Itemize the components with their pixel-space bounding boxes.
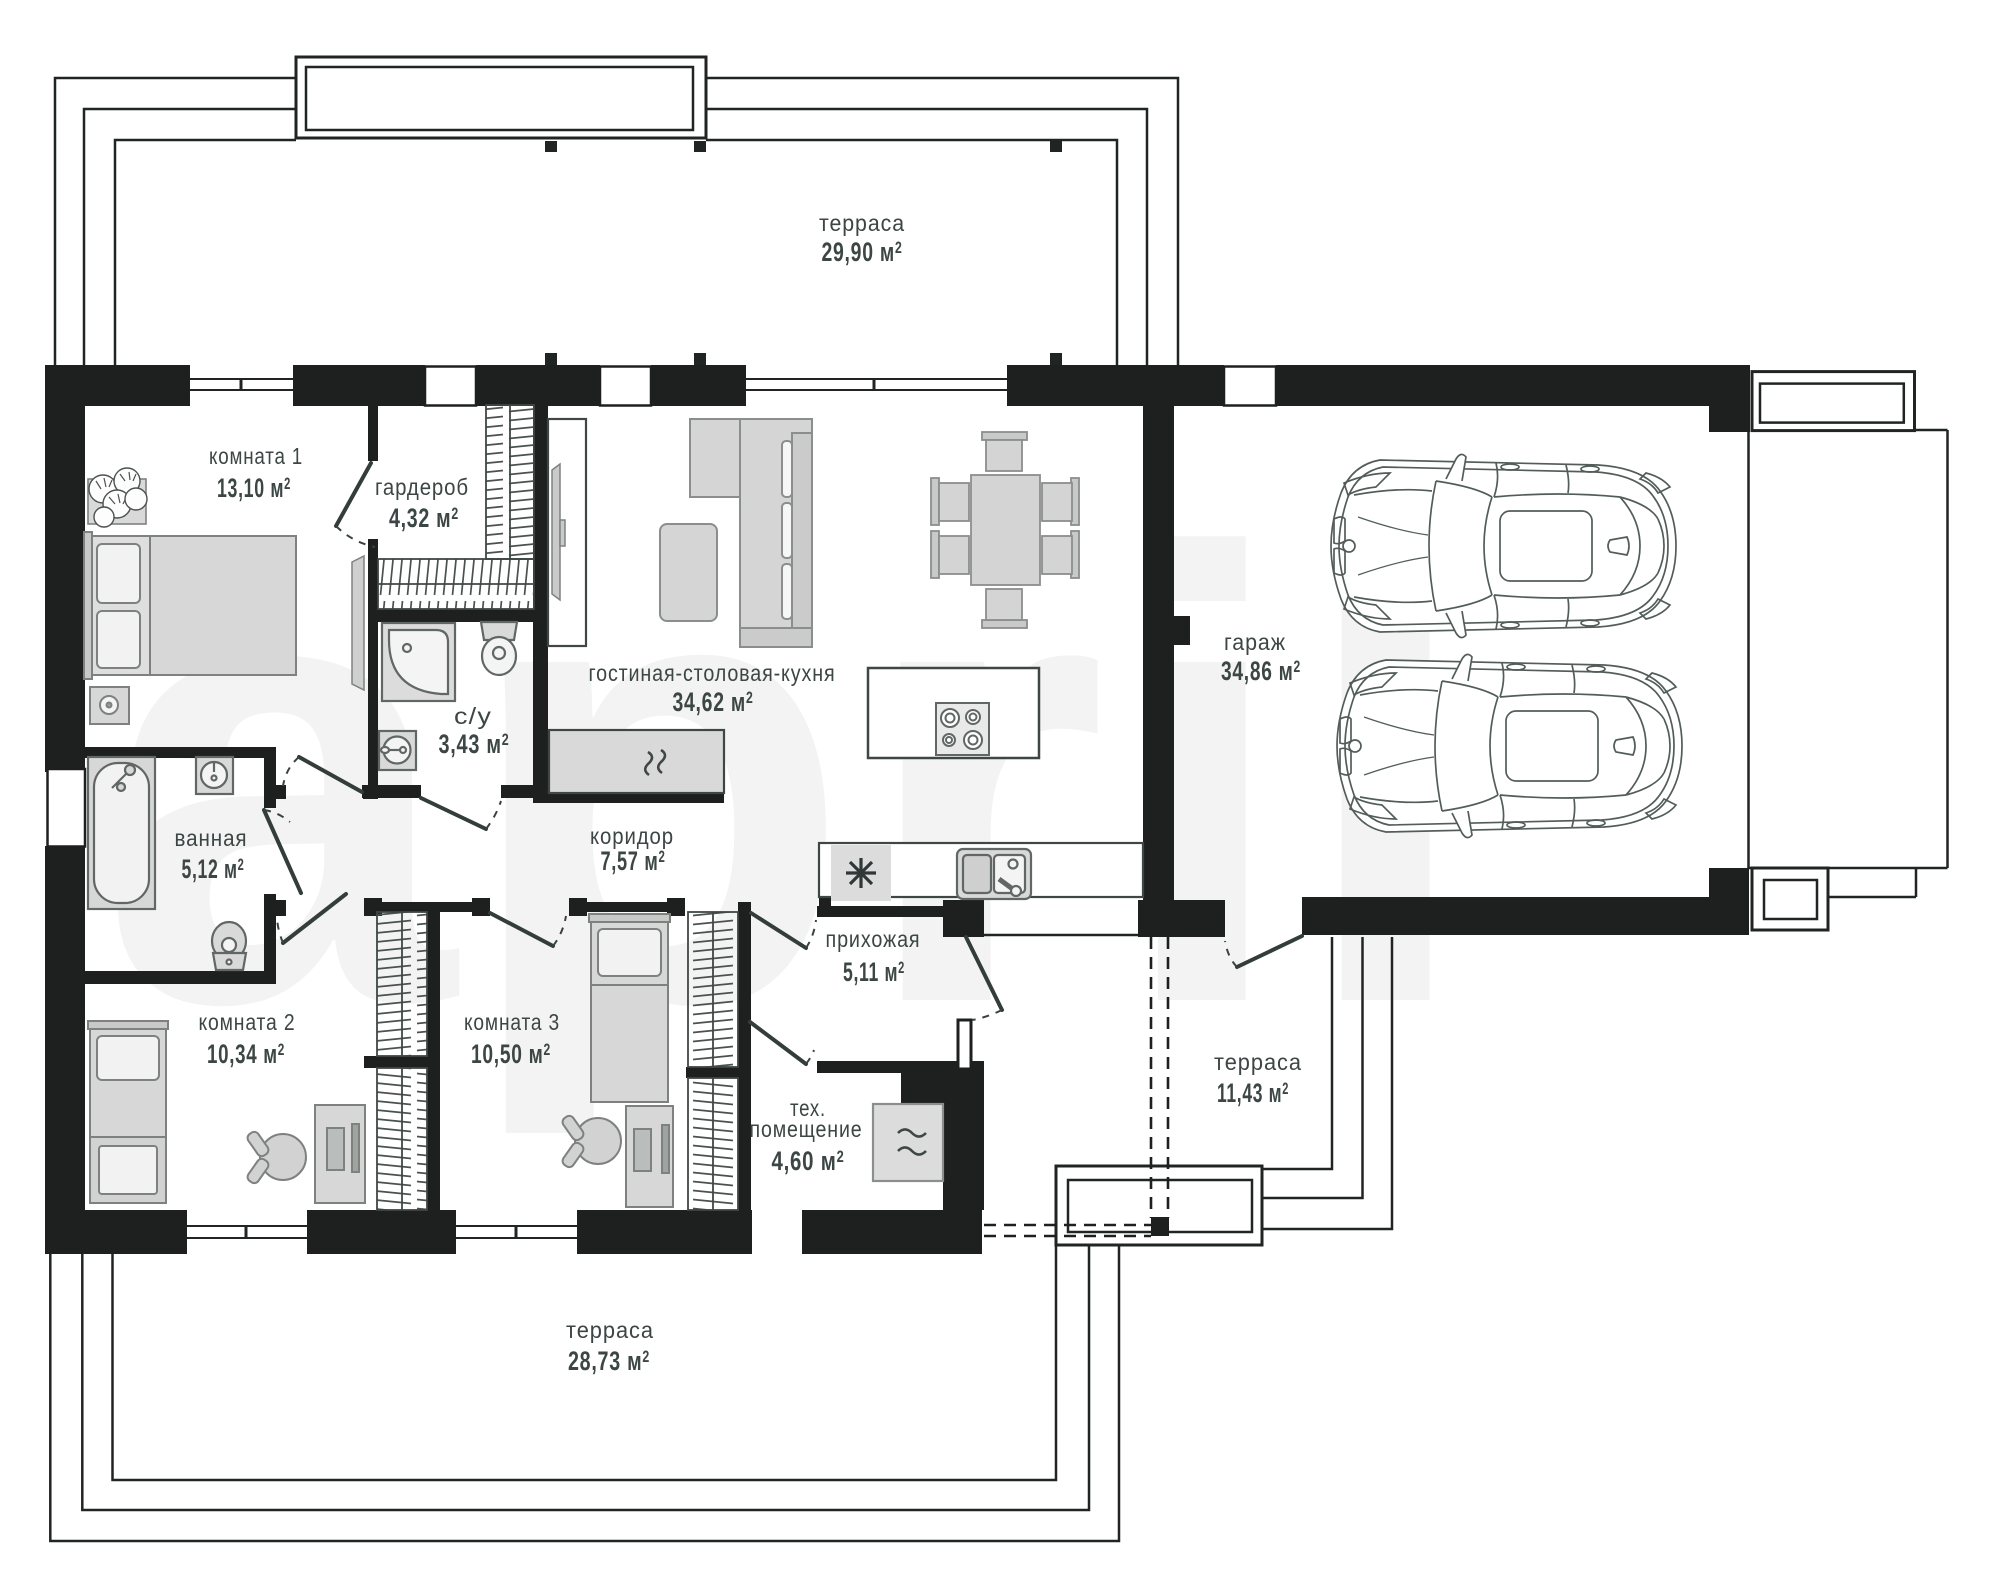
svg-text:комната 3: комната 3 xyxy=(464,1009,560,1035)
svg-text:терраса: терраса xyxy=(819,210,905,236)
svg-text:гараж: гараж xyxy=(1224,629,1286,655)
svg-text:помещение: помещение xyxy=(750,1116,863,1142)
svg-text:5,12 м2: 5,12 м2 xyxy=(182,854,245,884)
svg-text:29,90 м2: 29,90 м2 xyxy=(822,237,903,267)
svg-text:10,34 м2: 10,34 м2 xyxy=(207,1039,285,1069)
svg-text:34,86 м2: 34,86 м2 xyxy=(1221,656,1301,686)
svg-text:с/у: с/у xyxy=(454,703,492,729)
svg-text:комната 1: комната 1 xyxy=(209,443,303,469)
svg-text:прихожая: прихожая xyxy=(826,926,921,952)
svg-text:4,32 м2: 4,32 м2 xyxy=(389,503,459,533)
svg-text:комната 2: комната 2 xyxy=(199,1009,296,1035)
svg-text:7,57 м2: 7,57 м2 xyxy=(601,846,666,876)
svg-text:10,50 м2: 10,50 м2 xyxy=(471,1039,551,1069)
svg-text:гардероб: гардероб xyxy=(375,474,469,500)
svg-text:терраса: терраса xyxy=(1214,1049,1302,1075)
svg-text:гостиная-столовая-кухня: гостиная-столовая-кухня xyxy=(589,660,836,686)
svg-text:13,10 м2: 13,10 м2 xyxy=(217,473,291,503)
svg-text:4,60 м2: 4,60 м2 xyxy=(772,1146,845,1176)
svg-text:28,73 м2: 28,73 м2 xyxy=(568,1346,650,1376)
svg-text:терраса: терраса xyxy=(566,1317,654,1343)
svg-text:5,11 м2: 5,11 м2 xyxy=(843,957,905,987)
svg-text:ванная: ванная xyxy=(175,825,248,851)
svg-text:3,43 м2: 3,43 м2 xyxy=(439,729,510,759)
svg-text:11,43 м2: 11,43 м2 xyxy=(1217,1078,1289,1108)
svg-text:34,62 м2: 34,62 м2 xyxy=(673,687,754,717)
